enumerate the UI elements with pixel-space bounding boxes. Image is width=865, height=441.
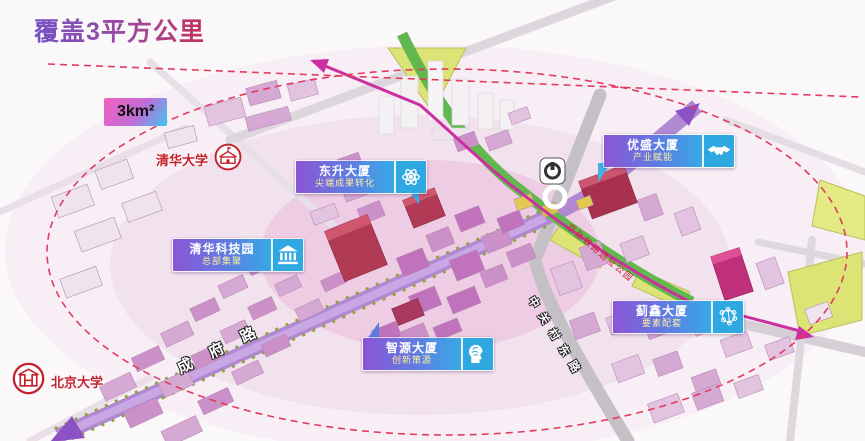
callout-yousheng-name: 优盛大厦 <box>627 139 679 152</box>
atom-icon <box>394 161 426 193</box>
callout-dongsheng-name: 东升大厦 <box>319 165 371 178</box>
tsinghua-university-name: 清华大学 <box>156 150 208 169</box>
callout-jixin: 蓟鑫大厦 要素配套 <box>612 300 744 334</box>
tsinghua-university-label: 清华大学 <box>156 143 242 176</box>
area-badge: 3km² <box>104 98 167 126</box>
peking-university-label: 北京大学 <box>12 362 103 400</box>
peking-university-icon <box>12 362 45 400</box>
peking-university-name: 北京大学 <box>51 372 103 391</box>
callout-zhiyuan-name: 智源大厦 <box>386 342 438 355</box>
tsinghua-university-icon <box>214 143 242 176</box>
page-title: 覆盖3平方公里 <box>34 12 205 48</box>
callout-jixin-name: 蓟鑫大厦 <box>636 305 688 318</box>
callout-zhiyuan: 智源大厦 创新策源 <box>362 337 494 371</box>
bank-icon <box>271 239 303 271</box>
city-map: 京张铁路遗址公园 <box>0 0 865 441</box>
callout-tsinghua-science-park: 清华科技园 总部集聚 <box>172 238 304 272</box>
slide: 京张铁路遗址公园 覆盖3平方公里 3km² 清华大学 <box>0 0 865 441</box>
callout-tsinghua-science-park-name: 清华科技园 <box>189 243 254 256</box>
brain-icon <box>461 338 493 370</box>
callout-dongsheng: 东升大厦 尖端成果转化 <box>295 160 427 194</box>
callout-zhiyuan-subtitle: 创新策源 <box>392 355 432 366</box>
molecule-icon <box>711 301 743 333</box>
callout-yousheng-subtitle: 产业赋能 <box>633 152 673 163</box>
handshake-icon <box>702 135 734 167</box>
callout-dongsheng-subtitle: 尖端成果转化 <box>315 178 375 189</box>
callout-tsinghua-science-park-subtitle: 总部集聚 <box>202 256 242 267</box>
callout-yousheng: 优盛大厦 产业赋能 <box>603 134 735 168</box>
callout-jixin-subtitle: 要素配套 <box>642 318 682 329</box>
